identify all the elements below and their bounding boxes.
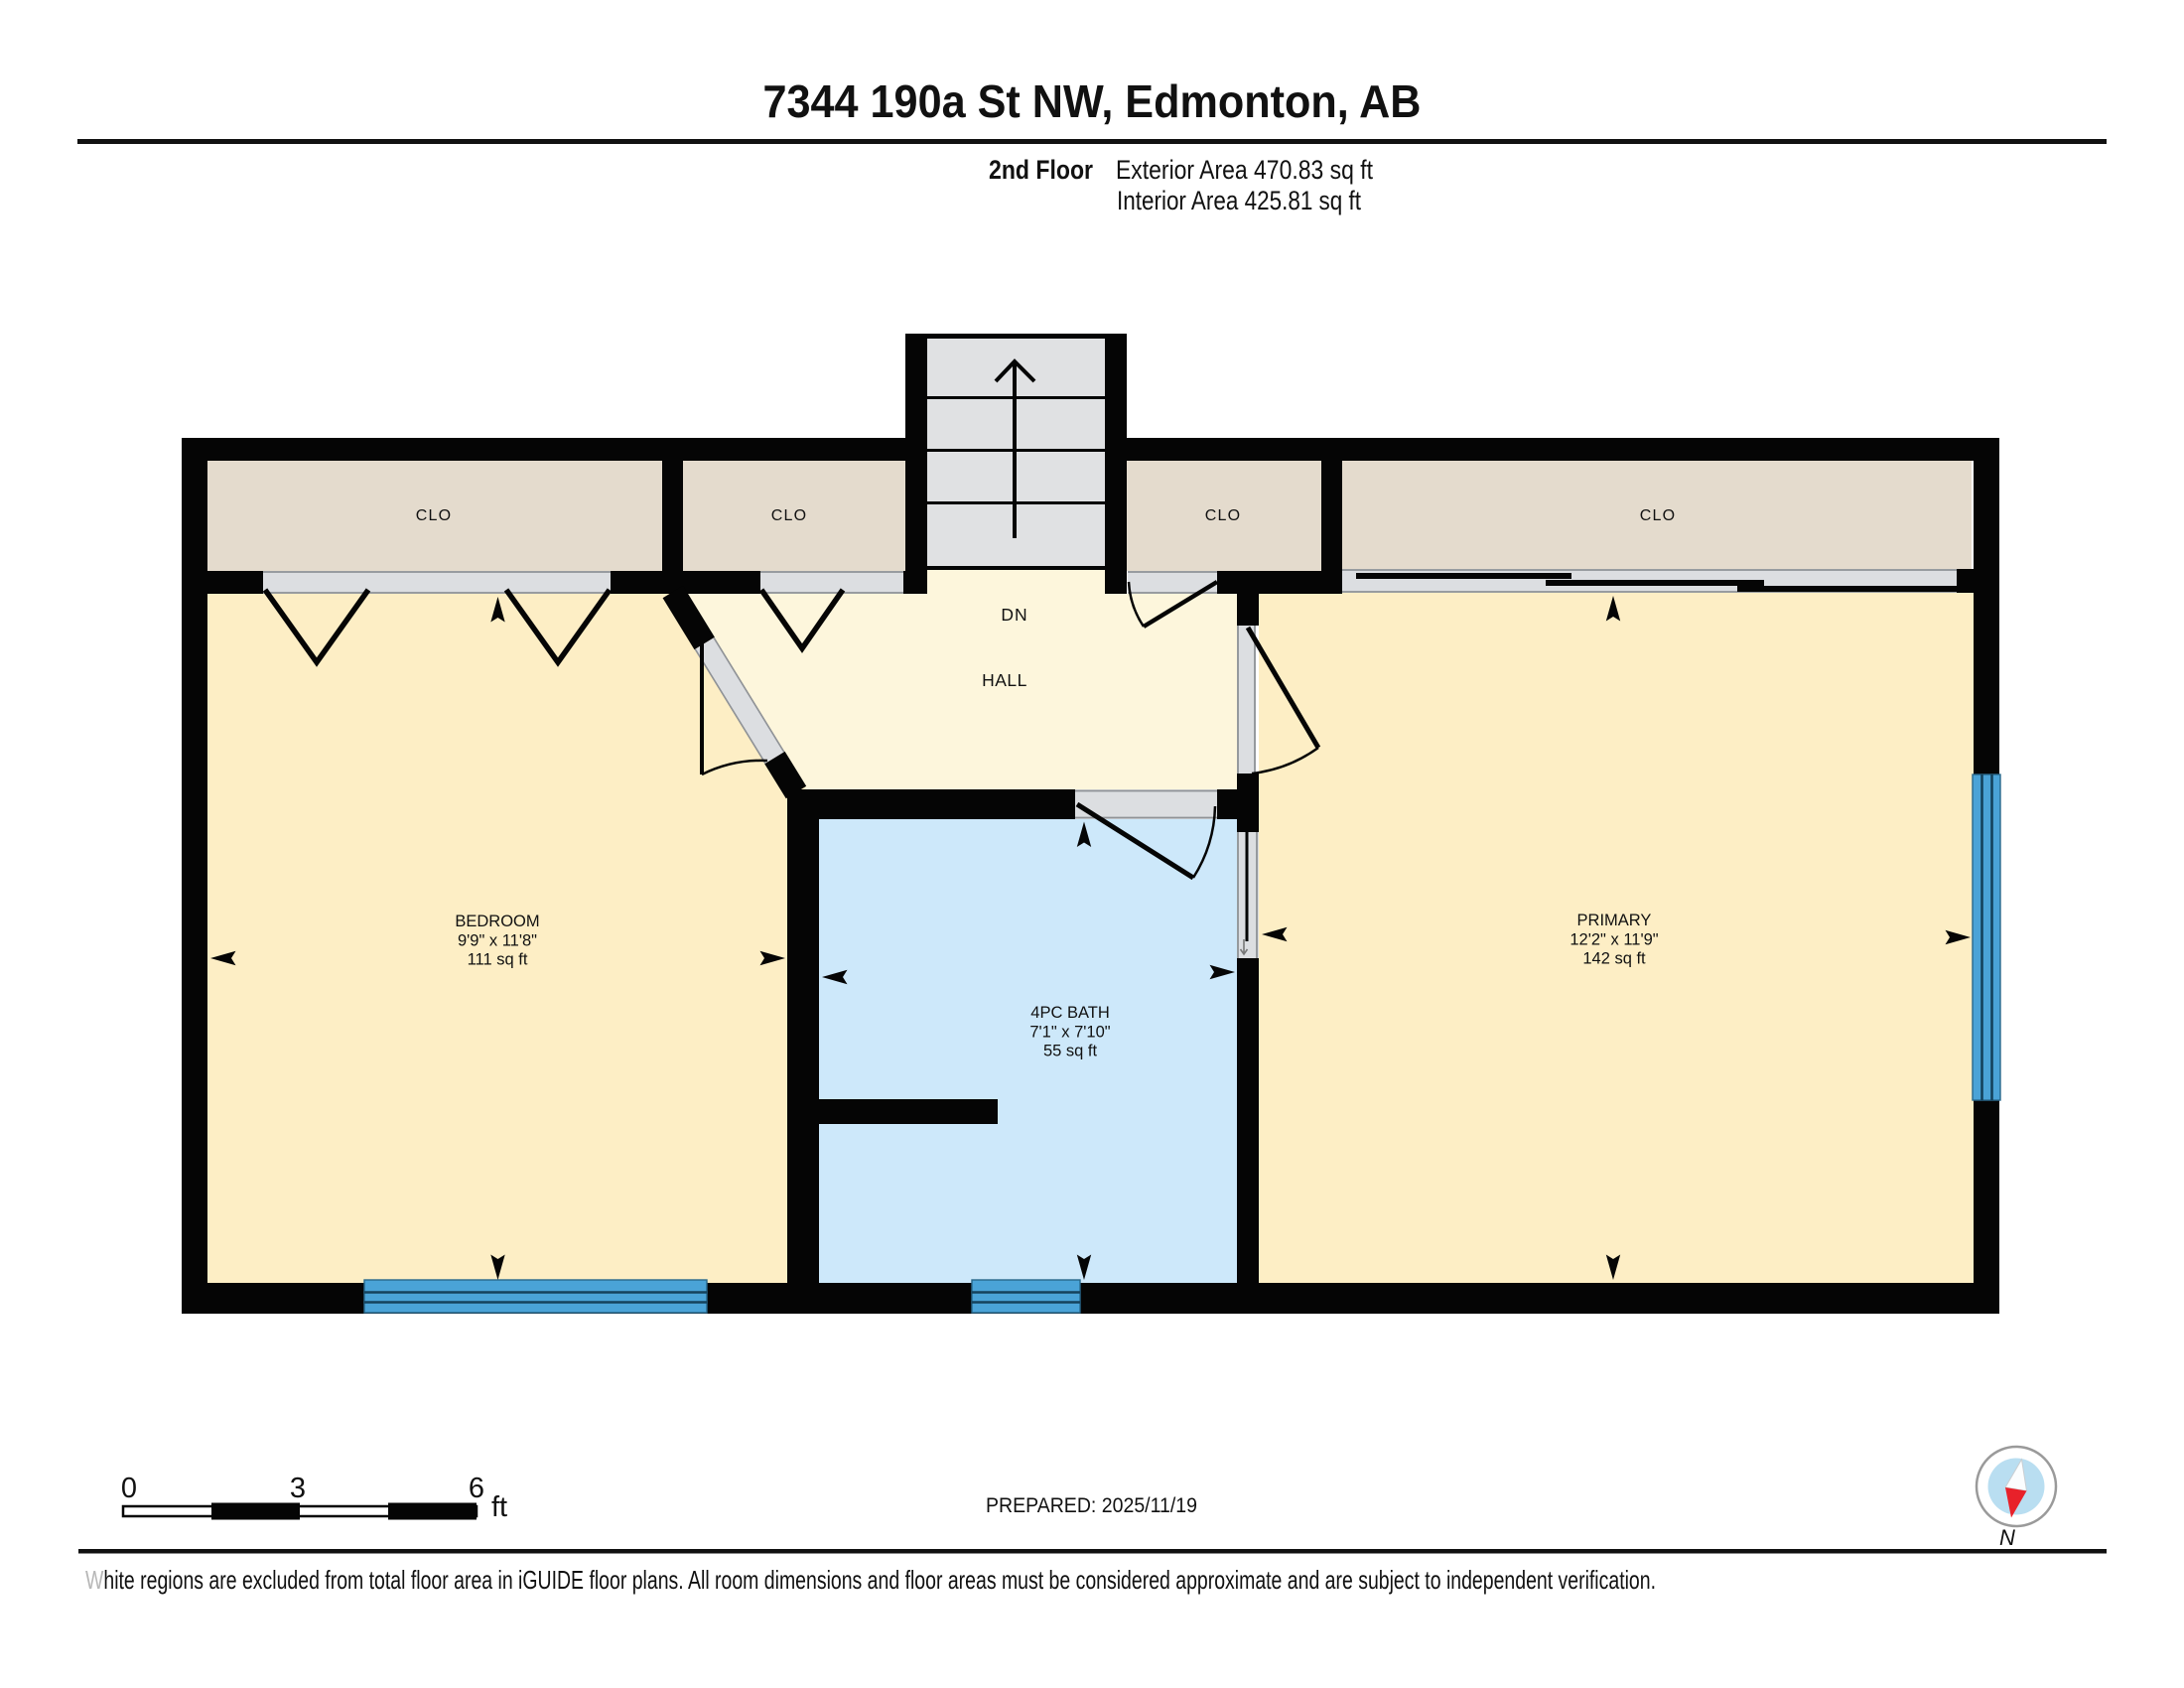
svg-text:CLO: CLO — [1205, 507, 1242, 524]
svg-text:Exterior Area 470.83 sq ft: Exterior Area 470.83 sq ft — [1116, 155, 1373, 185]
svg-text:6: 6 — [469, 1473, 484, 1504]
svg-text:HALL: HALL — [982, 670, 1027, 690]
svg-text:PRIMARY: PRIMARY — [1577, 912, 1652, 929]
svg-text:9'9" x 11'8": 9'9" x 11'8" — [458, 932, 537, 950]
svg-text:CLO: CLO — [771, 507, 808, 524]
svg-text:ft: ft — [491, 1491, 507, 1523]
svg-text:N: N — [1999, 1525, 2015, 1550]
svg-text:2nd Floor: 2nd Floor — [989, 155, 1093, 185]
svg-text:12'2" x 11'9": 12'2" x 11'9" — [1570, 931, 1658, 949]
svg-text:3: 3 — [290, 1473, 306, 1504]
svg-text:4PC BATH: 4PC BATH — [1030, 1004, 1109, 1022]
svg-text:7344 190a St NW, Edmonton, AB: 7344 190a St NW, Edmonton, AB — [763, 75, 1422, 127]
svg-text:PREPARED: 2025/11/19: PREPARED: 2025/11/19 — [986, 1494, 1197, 1517]
svg-text:DN: DN — [1001, 605, 1027, 625]
svg-text:7'1" x 7'10": 7'1" x 7'10" — [1029, 1024, 1110, 1042]
svg-text:111 sq ft: 111 sq ft — [468, 951, 528, 969]
svg-text:CLO: CLO — [1640, 507, 1677, 524]
svg-text:55 sq ft: 55 sq ft — [1043, 1043, 1098, 1060]
svg-text:142 sq ft: 142 sq ft — [1582, 950, 1646, 968]
svg-text:White regions are excluded fro: White regions are excluded from total fl… — [85, 1565, 1656, 1595]
svg-text:CLO: CLO — [416, 507, 453, 524]
svg-text:Interior Area 425.81 sq ft: Interior Area 425.81 sq ft — [1117, 186, 1361, 215]
svg-text:0: 0 — [121, 1473, 137, 1504]
svg-text:BEDROOM: BEDROOM — [455, 913, 539, 930]
